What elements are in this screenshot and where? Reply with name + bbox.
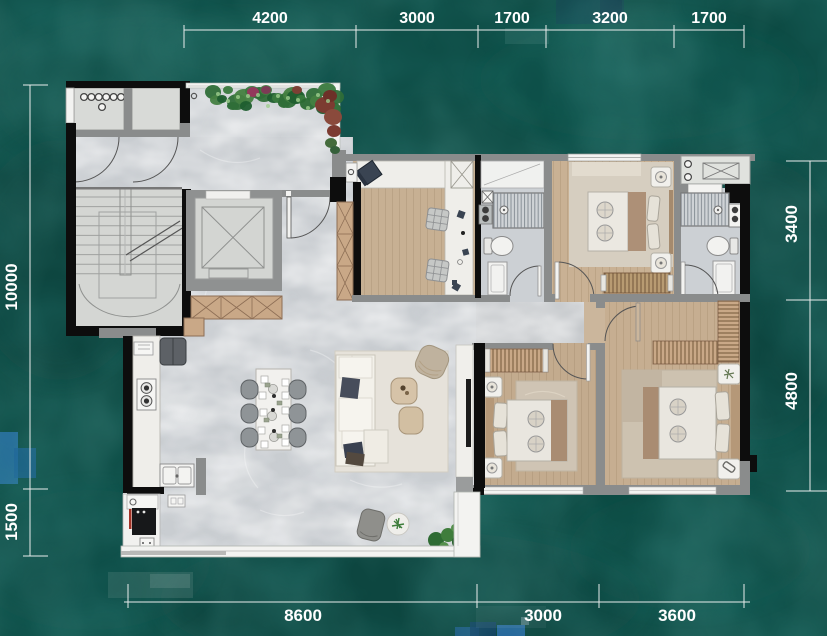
svg-text:4200: 4200 <box>252 10 288 27</box>
svg-text:3000: 3000 <box>524 606 562 625</box>
svg-text:1700: 1700 <box>691 10 727 27</box>
svg-text:3400: 3400 <box>782 205 801 243</box>
svg-text:3200: 3200 <box>592 10 628 27</box>
svg-text:10000: 10000 <box>2 263 21 310</box>
svg-text:1500: 1500 <box>2 503 21 541</box>
svg-text:3600: 3600 <box>658 606 696 625</box>
svg-text:3000: 3000 <box>399 10 435 27</box>
svg-text:8600: 8600 <box>284 606 322 625</box>
svg-text:1700: 1700 <box>494 10 530 27</box>
svg-text:4800: 4800 <box>782 372 801 410</box>
